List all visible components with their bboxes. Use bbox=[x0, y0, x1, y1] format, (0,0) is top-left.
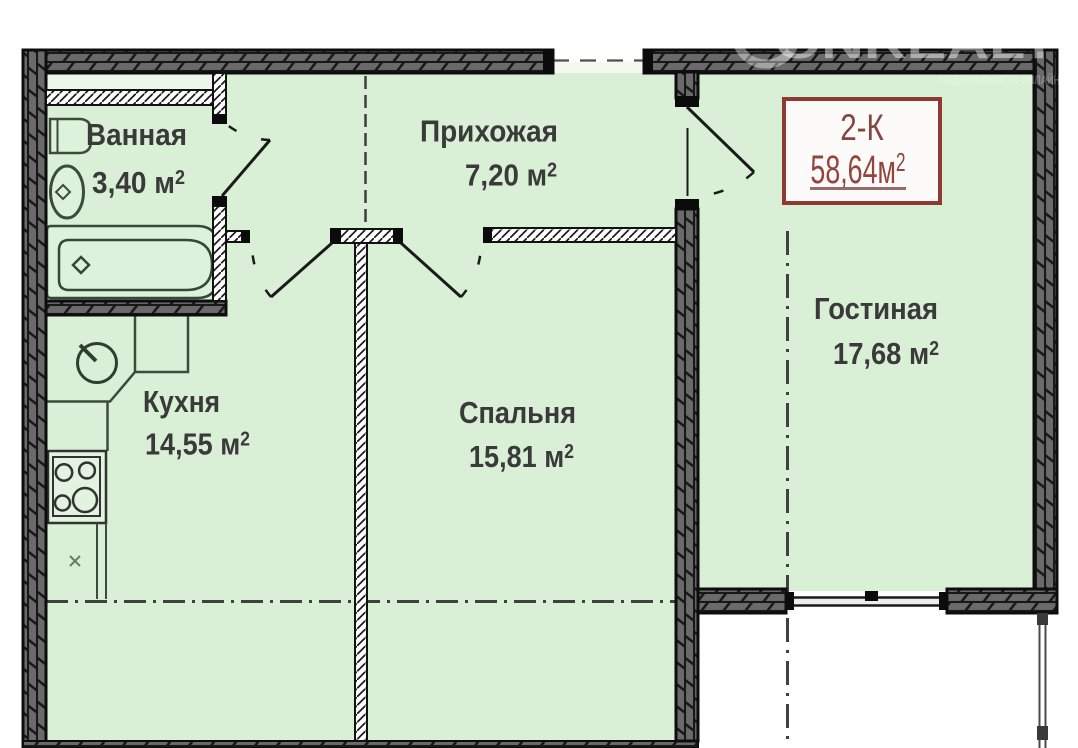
svg-text:3,40 м2: 3,40 м2 bbox=[92, 165, 185, 200]
svg-text:Кухня: Кухня bbox=[143, 384, 220, 419]
svg-text:Прихожая: Прихожая bbox=[420, 114, 558, 149]
svg-text:ONREALT: ONREALT bbox=[775, 19, 1057, 68]
svg-text:Гостиная: Гостиная bbox=[814, 291, 938, 326]
svg-text:Спальня: Спальня bbox=[459, 395, 576, 430]
svg-text:15,81 м2: 15,81 м2 bbox=[469, 439, 574, 474]
svg-text:58,64м2: 58,64м2 bbox=[810, 148, 905, 193]
svg-text:НЕДВИЖИМОСТЬ ОНЛАЙН: НЕДВИЖИМОСТЬ ОНЛАЙН bbox=[940, 72, 1060, 87]
svg-text:14,55 м2: 14,55 м2 bbox=[145, 427, 250, 462]
svg-text:17,68 м2: 17,68 м2 bbox=[833, 336, 939, 371]
svg-text:2-К: 2-К bbox=[840, 108, 884, 149]
svg-text:7,20 м2: 7,20 м2 bbox=[465, 158, 557, 193]
svg-text:Ванная: Ванная bbox=[86, 117, 187, 152]
